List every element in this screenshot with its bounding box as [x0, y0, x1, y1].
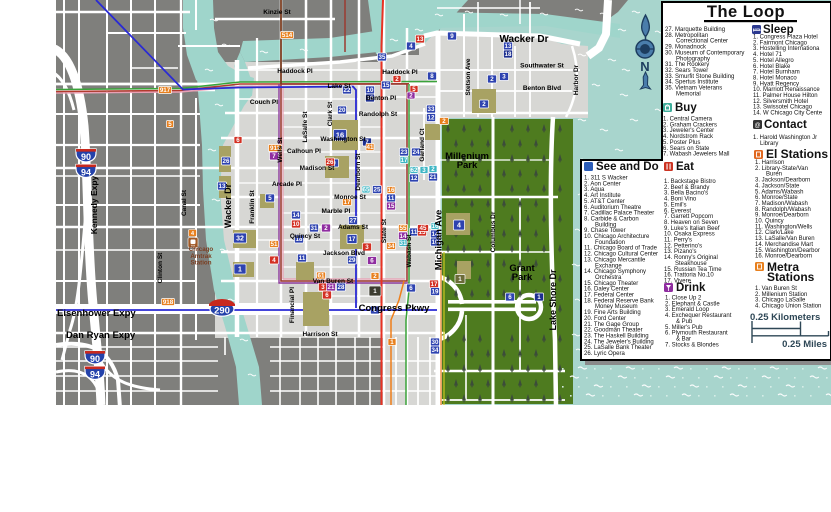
svg-text:8: 8: [430, 73, 434, 80]
svg-text:Columbus Dr: Columbus Dr: [490, 211, 497, 252]
svg-text:6: 6: [508, 294, 512, 301]
svg-text:4. Chicago Union Station: 4. Chicago Union Station: [755, 304, 821, 310]
svg-text:11: 11: [299, 255, 306, 262]
svg-text:@: @: [754, 123, 760, 129]
svg-text:Dan Ryan Expy: Dan Ryan Expy: [66, 330, 136, 341]
svg-text:31: 31: [311, 225, 318, 232]
svg-text:See and Do: See and Do: [596, 161, 659, 173]
svg-text:4: 4: [272, 257, 276, 264]
svg-text:Stetson Ave: Stetson Ave: [465, 58, 472, 95]
svg-text:Stations: Stations: [767, 270, 815, 284]
svg-text:94: 94: [90, 370, 100, 380]
svg-text:90: 90: [81, 152, 91, 162]
svg-text:Clinton St: Clinton St: [157, 252, 164, 284]
svg-text:Randolph St: Randolph St: [359, 111, 398, 118]
svg-text:Calhoun Pl: Calhoun Pl: [287, 148, 321, 155]
svg-text:Van Buren St: Van Buren St: [313, 278, 354, 285]
svg-text:Harbor Dr: Harbor Dr: [573, 64, 580, 95]
svg-text:Wacker Dr: Wacker Dr: [499, 34, 548, 45]
svg-text:2: 2: [373, 273, 377, 280]
svg-text:3: 3: [365, 244, 369, 251]
svg-text:14. W Chicago City Cente: 14. W Chicago City Cente: [753, 111, 823, 117]
svg-text:Lake St: Lake St: [327, 83, 351, 90]
svg-text:7: 7: [272, 153, 276, 160]
svg-text:Park: Park: [457, 160, 478, 171]
svg-text:19: 19: [432, 289, 439, 296]
svg-text:32: 32: [236, 236, 244, 243]
svg-text:15: 15: [388, 203, 395, 210]
svg-text:Couch Pl: Couch Pl: [250, 99, 278, 106]
svg-text:Buy: Buy: [675, 102, 697, 114]
svg-text:1: 1: [458, 276, 462, 283]
svg-text:35: 35: [379, 54, 386, 61]
svg-text:2: 2: [395, 76, 399, 83]
svg-text:15: 15: [383, 82, 390, 89]
svg-text:514: 514: [282, 32, 293, 39]
svg-text:Michigan Ave: Michigan Ave: [434, 210, 445, 271]
svg-text:90: 90: [90, 354, 100, 364]
svg-text:Madison St: Madison St: [300, 165, 336, 172]
svg-text:Adams St: Adams St: [338, 224, 369, 231]
svg-text:65: 65: [363, 187, 370, 194]
svg-text:41: 41: [367, 144, 374, 151]
svg-text:16. Monroe/Dearborn: 16. Monroe/Dearborn: [755, 254, 812, 260]
svg-text:Wells St: Wells St: [277, 137, 284, 163]
svg-text:55: 55: [400, 225, 407, 232]
svg-text:Kinzie St: Kinzie St: [263, 9, 291, 16]
svg-text:918: 918: [163, 299, 174, 306]
svg-text:2: 2: [409, 93, 413, 100]
svg-text:Congress Pkwy: Congress Pkwy: [359, 303, 430, 314]
svg-text:12: 12: [428, 115, 435, 122]
svg-text:2: 2: [442, 118, 446, 125]
svg-text:1: 1: [537, 294, 541, 301]
svg-text:Lake Shore Dr: Lake Shore Dr: [548, 269, 558, 331]
svg-text:17: 17: [401, 157, 408, 164]
svg-text:0.25 Kilometers: 0.25 Kilometers: [750, 312, 820, 323]
svg-text:2: 2: [324, 225, 328, 232]
svg-text:Drink: Drink: [676, 282, 706, 294]
svg-text:11: 11: [388, 195, 395, 202]
svg-text:33: 33: [428, 106, 435, 113]
svg-text:13: 13: [417, 36, 424, 43]
svg-text:Quincy St: Quincy St: [290, 233, 321, 240]
svg-text:Washington St: Washington St: [320, 136, 366, 143]
svg-text:7. Wabash Jewelers Mall: 7. Wabash Jewelers Mall: [663, 152, 729, 158]
svg-text:Station: Station: [191, 260, 212, 267]
svg-text:Financial Pl: Financial Pl: [289, 287, 296, 323]
svg-text:26. Lyric Opera: 26. Lyric Opera: [584, 351, 625, 357]
svg-text:Southwater St: Southwater St: [520, 63, 565, 70]
svg-text:6: 6: [325, 292, 329, 299]
svg-text:Eat: Eat: [676, 161, 694, 173]
svg-text:4. Exchequer Restaurant: 4. Exchequer Restaurant: [665, 313, 732, 319]
svg-text:Benton Blvd: Benton Blvd: [523, 85, 561, 92]
svg-text:Eisenhower Expy: Eisenhower Expy: [57, 308, 136, 319]
svg-text:290: 290: [214, 306, 230, 317]
svg-text:1: 1: [390, 339, 394, 346]
svg-text:Harrison St: Harrison St: [302, 331, 338, 338]
svg-text:The Loop: The Loop: [707, 3, 785, 21]
svg-text:28: 28: [338, 284, 345, 291]
svg-text:51: 51: [271, 241, 278, 248]
svg-text:Monroe St: Monroe St: [334, 194, 367, 201]
svg-text:LaSalle St: LaSalle St: [302, 111, 309, 143]
svg-text:Benton Pl: Benton Pl: [366, 95, 397, 102]
svg-text:18: 18: [505, 51, 512, 58]
svg-text:3: 3: [422, 167, 426, 174]
svg-text:N: N: [640, 59, 649, 74]
svg-text:Canal St: Canal St: [181, 189, 188, 216]
svg-text:5: 5: [168, 121, 172, 128]
svg-text:Wacker Dr: Wacker Dr: [223, 183, 233, 228]
svg-text:10: 10: [293, 221, 300, 228]
svg-text:1: 1: [373, 288, 377, 295]
svg-text:62: 62: [411, 167, 418, 174]
svg-text:Park: Park: [512, 272, 533, 283]
svg-text:2: 2: [482, 101, 486, 108]
svg-text:Garland Ct: Garland Ct: [419, 128, 426, 162]
svg-text:17: 17: [349, 236, 356, 243]
svg-text:Dearborn St: Dearborn St: [355, 153, 362, 191]
svg-text:2: 2: [431, 166, 435, 173]
svg-text:Chicago: Chicago: [189, 246, 214, 253]
svg-text:State St: State St: [381, 218, 388, 243]
svg-text:Haddock Pl: Haddock Pl: [382, 69, 418, 76]
svg-text:Marble Pl: Marble Pl: [322, 208, 351, 215]
svg-text:6: 6: [236, 137, 240, 144]
svg-text:20: 20: [339, 107, 346, 114]
svg-text:0.25 Miles: 0.25 Miles: [782, 339, 827, 350]
svg-text:5: 5: [268, 195, 272, 202]
svg-text:6: 6: [409, 285, 413, 292]
svg-text:Franklin St: Franklin St: [249, 189, 256, 223]
svg-text:El Stations: El Stations: [766, 147, 828, 161]
svg-text:30: 30: [432, 339, 439, 346]
svg-text:Kennedy Expy: Kennedy Expy: [89, 175, 99, 234]
svg-text:Wabash St: Wabash St: [406, 234, 413, 268]
svg-text:34: 34: [388, 243, 395, 250]
svg-text:3: 3: [502, 74, 506, 81]
svg-text:Clark St: Clark St: [327, 101, 334, 126]
svg-text:23: 23: [401, 149, 408, 156]
svg-text:29: 29: [349, 257, 356, 264]
svg-text:2: 2: [490, 76, 494, 83]
svg-text:Haddock Pl: Haddock Pl: [277, 68, 313, 75]
svg-text:Jackson Blvd: Jackson Blvd: [323, 250, 365, 257]
svg-text:26: 26: [223, 158, 230, 165]
svg-text:12: 12: [411, 175, 418, 182]
svg-text:21: 21: [328, 284, 335, 291]
svg-text:Contact: Contact: [764, 119, 807, 131]
svg-text:1: 1: [238, 267, 242, 274]
svg-text:6. Plymouth Restaurant: 6. Plymouth Restaurant: [665, 331, 728, 337]
svg-text:3: 3: [321, 284, 325, 291]
svg-text:6: 6: [370, 258, 374, 265]
svg-text:10: 10: [367, 87, 374, 94]
svg-text:Arcade Pl: Arcade Pl: [272, 181, 302, 188]
svg-text:34: 34: [432, 347, 439, 354]
svg-text:25: 25: [374, 187, 381, 194]
svg-text:Memorial: Memorial: [676, 91, 701, 97]
svg-text:917: 917: [160, 87, 171, 94]
svg-text:4: 4: [409, 43, 413, 50]
svg-text:9: 9: [450, 33, 454, 40]
svg-text:14: 14: [293, 212, 300, 219]
svg-text:45: 45: [420, 225, 427, 232]
svg-text:4: 4: [457, 223, 461, 230]
svg-text:7. Stocks & Blondes: 7. Stocks & Blondes: [665, 342, 719, 348]
svg-text:21: 21: [430, 174, 437, 181]
svg-text:16: 16: [388, 187, 395, 194]
